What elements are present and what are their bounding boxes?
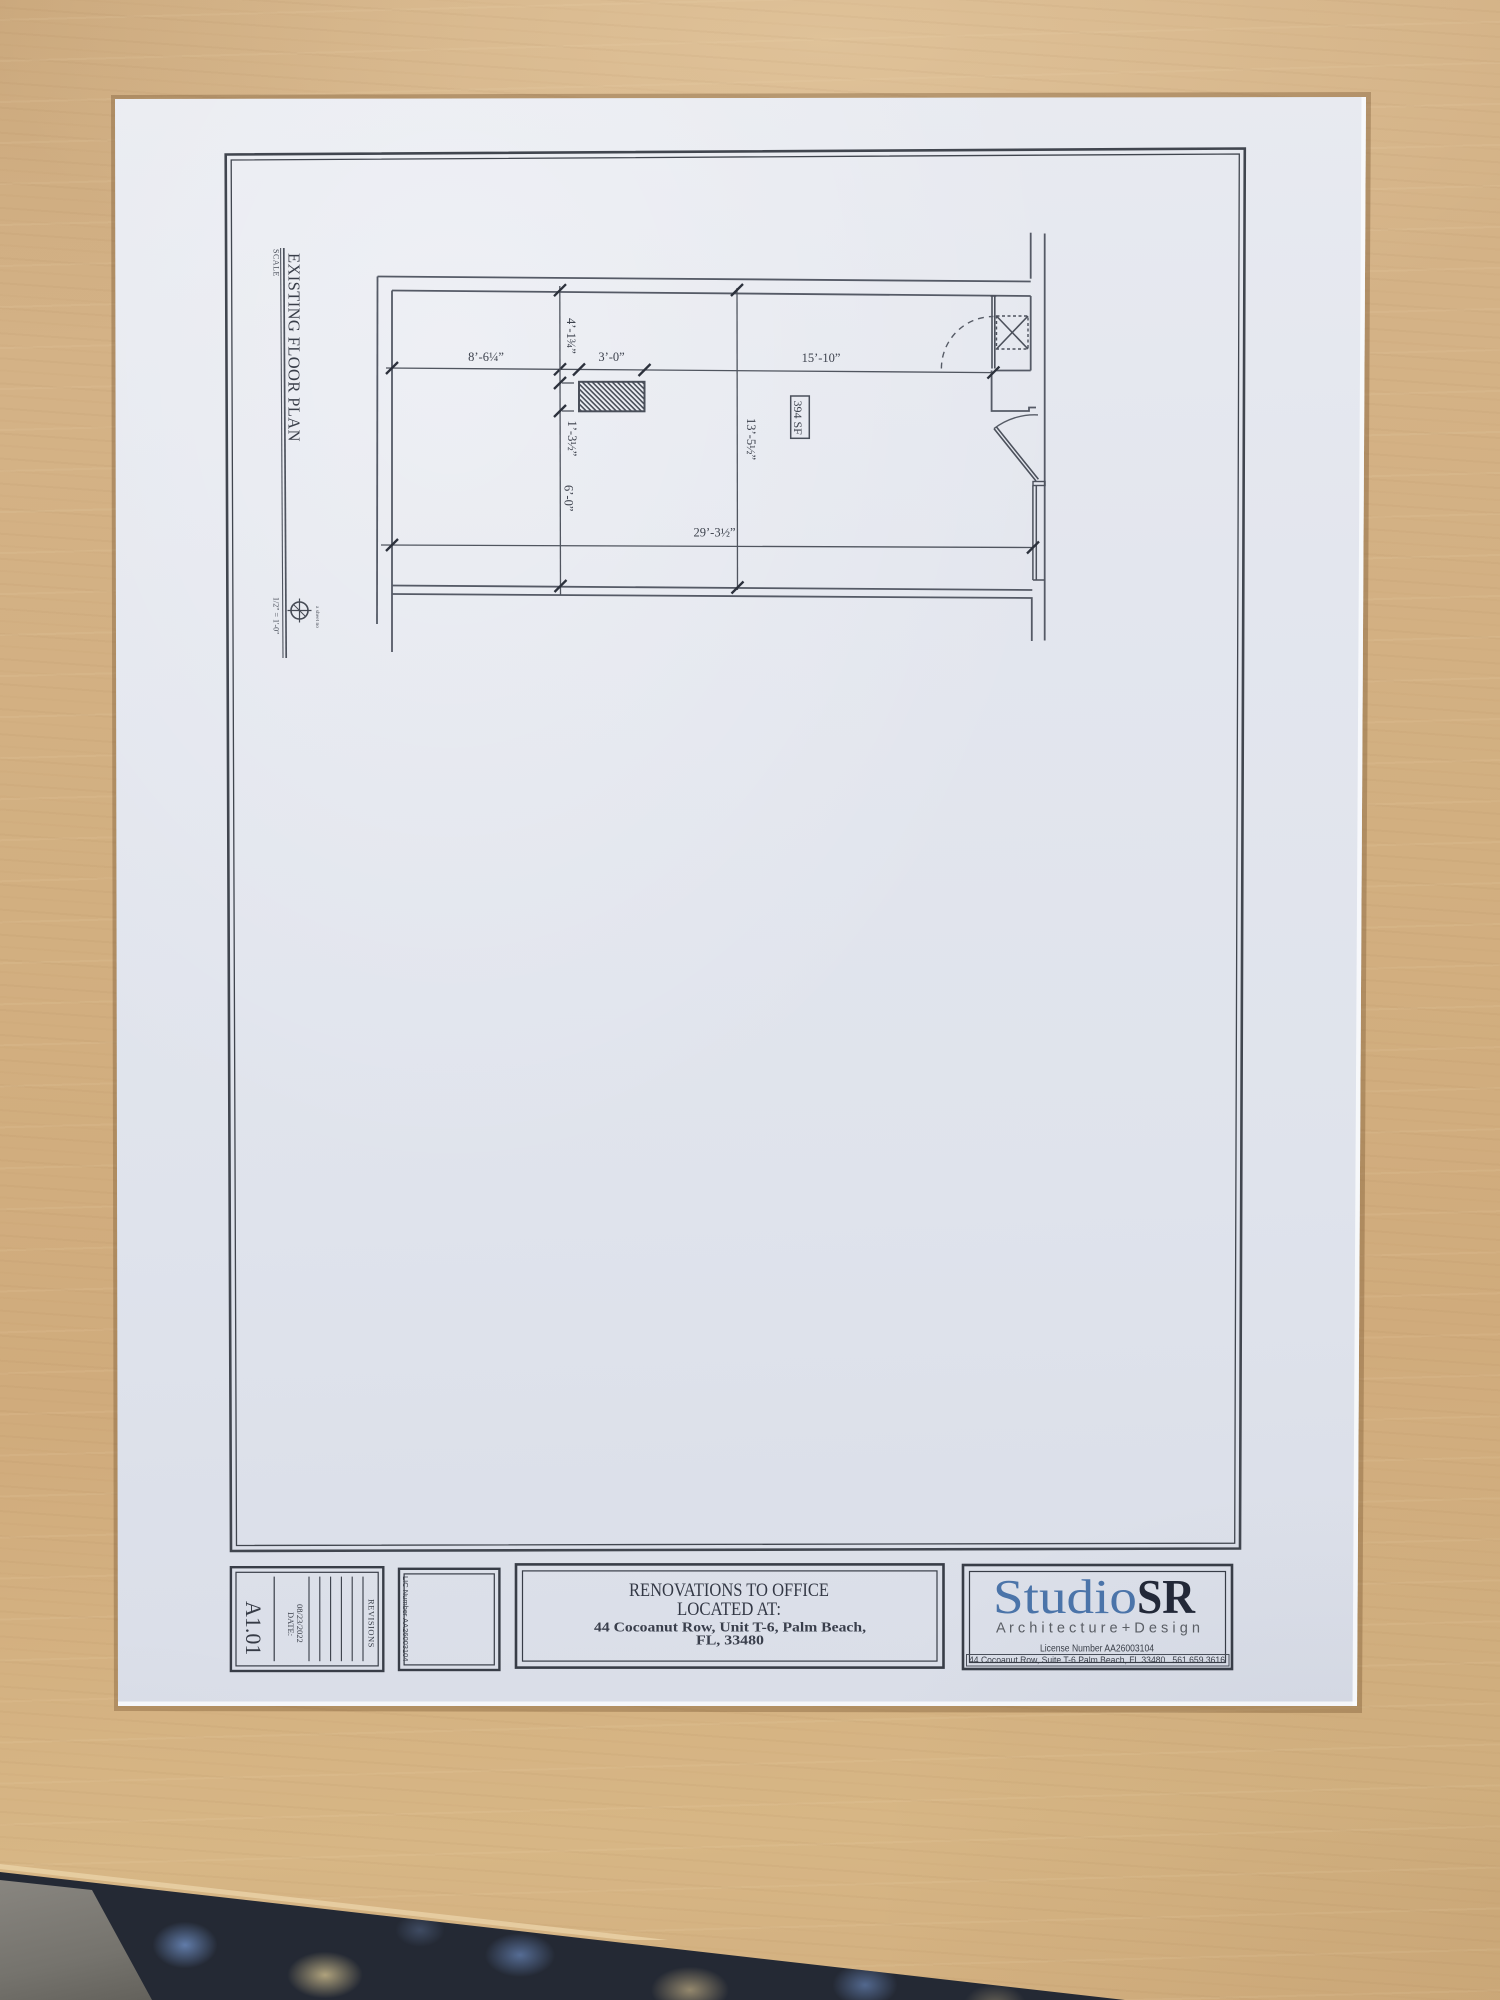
svg-text:08/23/2022: 08/23/2022 bbox=[295, 1604, 305, 1643]
svg-text:6’-0”: 6’-0” bbox=[562, 485, 576, 511]
svg-text:Studio: Studio bbox=[993, 1569, 1137, 1624]
svg-text:4’-1¾”: 4’-1¾” bbox=[564, 318, 578, 354]
svg-text:License Number AA26003104: License Number AA26003104 bbox=[1040, 1644, 1154, 1655]
svg-text:SR: SR bbox=[1137, 1569, 1196, 1624]
svg-text:REVISIONS: REVISIONS bbox=[367, 1599, 377, 1648]
svg-text:LIC Number AA26003104: LIC Number AA26003104 bbox=[401, 1576, 410, 1661]
svg-text:RENOVATIONS TO OFFICE: RENOVATIONS TO OFFICE bbox=[629, 1581, 829, 1601]
svg-text:44 Cocoanut Row, Suite T-6 Pal: 44 Cocoanut Row, Suite T-6 Palm Beach, F… bbox=[969, 1655, 1225, 1666]
svg-text:13’-5½”: 13’-5½” bbox=[744, 418, 758, 460]
svg-text:SCALE: SCALE bbox=[272, 249, 281, 277]
svg-text:A r c h i t e c t u r e + D e: A r c h i t e c t u r e + D e s i g n bbox=[996, 1621, 1200, 1637]
svg-text:LOCATED AT:: LOCATED AT: bbox=[677, 1600, 781, 1620]
svg-text:29’-3½”: 29’-3½” bbox=[694, 526, 736, 540]
svg-text:3’-0”: 3’-0” bbox=[598, 350, 624, 364]
svg-text:A1.01: A1.01 bbox=[241, 1601, 266, 1655]
svg-text:15’-10”: 15’-10” bbox=[802, 351, 841, 365]
svg-text:a sheet no: a sheet no bbox=[314, 606, 320, 628]
svg-text:8’-6¼”: 8’-6¼” bbox=[468, 350, 504, 364]
svg-text:394 SF: 394 SF bbox=[791, 401, 805, 436]
svg-text:1’-3½”: 1’-3½” bbox=[565, 421, 579, 457]
svg-text:1/2" = 1'-0": 1/2" = 1'-0" bbox=[272, 597, 281, 634]
svg-text:FL, 33480: FL, 33480 bbox=[696, 1633, 764, 1648]
svg-text:DATE:: DATE: bbox=[286, 1612, 296, 1636]
svg-text:EXISTING FLOOR PLAN: EXISTING FLOOR PLAN bbox=[285, 253, 304, 442]
